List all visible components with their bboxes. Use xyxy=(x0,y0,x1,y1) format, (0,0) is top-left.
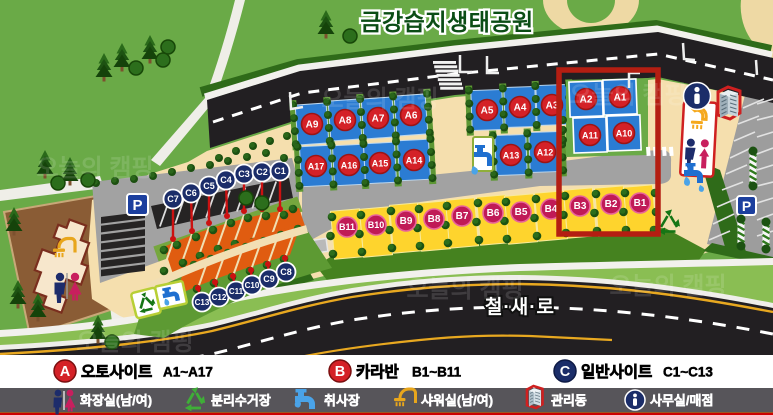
svg-text:C1: C1 xyxy=(274,166,286,176)
svg-text:오늘의 캠핑: 오늘의 캠핑 xyxy=(609,273,726,300)
svg-text:A17: A17 xyxy=(308,161,325,171)
svg-text:B8: B8 xyxy=(428,214,441,225)
svg-text:C5: C5 xyxy=(203,181,215,191)
svg-text:C7: C7 xyxy=(167,194,179,204)
svg-text:B2: B2 xyxy=(605,199,618,210)
svg-text:오늘의 캠핑: 오늘의 캠핑 xyxy=(76,329,193,356)
svg-text:오늘의 캠핑: 오늘의 캠핑 xyxy=(36,155,153,182)
svg-text:A14: A14 xyxy=(406,155,423,165)
svg-text:A1~A17: A1~A17 xyxy=(163,365,213,380)
svg-text:C13: C13 xyxy=(195,298,210,307)
svg-text:사무실/매점: 사무실/매점 xyxy=(650,393,713,408)
svg-text:A10: A10 xyxy=(616,128,633,138)
svg-text:A13: A13 xyxy=(503,150,520,160)
svg-text:오늘의 캠핑: 오늘의 캠핑 xyxy=(321,86,438,113)
svg-text:취사장: 취사장 xyxy=(324,393,360,408)
svg-text:B5: B5 xyxy=(515,207,528,218)
svg-text:C10: C10 xyxy=(245,281,260,290)
svg-text:A5: A5 xyxy=(481,105,494,116)
svg-text:A: A xyxy=(60,364,71,380)
svg-text:관리동: 관리동 xyxy=(551,393,587,408)
svg-text:화장실(남/여): 화장실(남/여) xyxy=(80,393,152,408)
svg-text:C8: C8 xyxy=(280,267,292,277)
svg-text:C2: C2 xyxy=(256,167,268,177)
svg-text:A11: A11 xyxy=(582,130,598,140)
svg-text:A12: A12 xyxy=(537,147,554,157)
svg-text:B1~B11: B1~B11 xyxy=(412,365,462,380)
svg-text:C4: C4 xyxy=(220,175,232,185)
svg-text:C11: C11 xyxy=(229,287,244,296)
svg-text:오토사이트: 오토사이트 xyxy=(81,363,152,381)
svg-text:B9: B9 xyxy=(400,216,413,227)
svg-text:B4: B4 xyxy=(545,204,558,215)
svg-text:A8: A8 xyxy=(339,115,352,126)
svg-text:B3: B3 xyxy=(574,201,587,212)
svg-text:A16: A16 xyxy=(341,160,358,170)
svg-text:C1~C13: C1~C13 xyxy=(663,365,713,380)
svg-text:카라반: 카라반 xyxy=(356,363,400,381)
svg-text:A9: A9 xyxy=(306,119,319,130)
svg-text:B10: B10 xyxy=(368,220,385,230)
svg-text:P: P xyxy=(742,198,751,214)
svg-text:B7: B7 xyxy=(456,211,469,222)
svg-text:C: C xyxy=(560,364,571,380)
svg-text:P: P xyxy=(132,197,142,214)
svg-text:C9: C9 xyxy=(263,274,275,284)
svg-text:A4: A4 xyxy=(514,102,527,113)
svg-text:B1: B1 xyxy=(634,198,647,209)
svg-text:A15: A15 xyxy=(372,158,389,168)
svg-text:C3: C3 xyxy=(238,169,250,179)
svg-text:C12: C12 xyxy=(212,293,227,302)
svg-text:A7: A7 xyxy=(372,113,385,124)
svg-text:샤워실(남/여): 샤워실(남/여) xyxy=(421,393,493,408)
svg-text:금강습지생태공원: 금강습지생태공원 xyxy=(360,9,533,35)
svg-text:B: B xyxy=(335,364,345,380)
svg-text:오늘의 캠핑: 오늘의 캠핑 xyxy=(406,276,523,303)
svg-text:오늘의 캠핑: 오늘의 캠핑 xyxy=(569,82,686,109)
svg-text:분리수거장: 분리수거장 xyxy=(211,393,271,408)
svg-text:C6: C6 xyxy=(185,188,197,198)
svg-text:일반사이트: 일반사이트 xyxy=(581,363,652,381)
svg-text:B11: B11 xyxy=(339,222,355,232)
svg-text:B6: B6 xyxy=(487,208,500,219)
